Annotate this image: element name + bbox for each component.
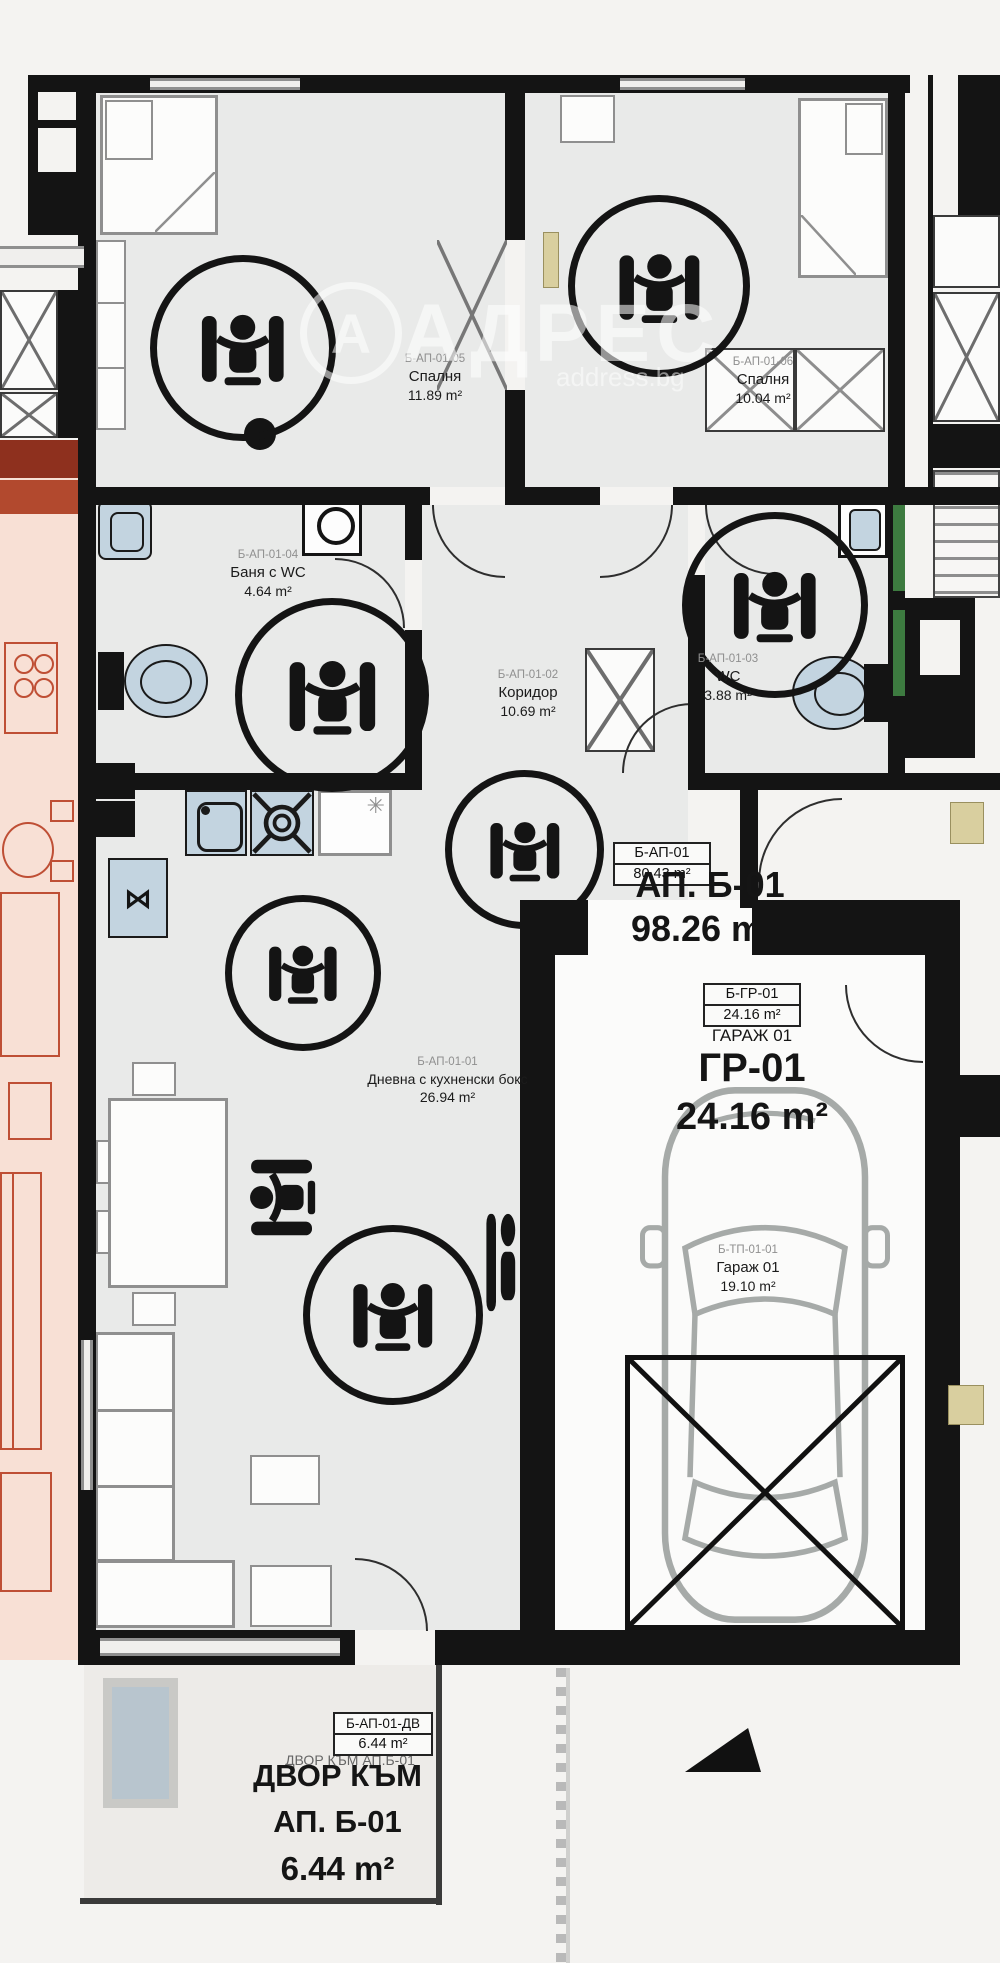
wheelchair-accessibility-icon bbox=[225, 895, 381, 1051]
room-code: Б-ТП-01-01 bbox=[668, 1243, 828, 1258]
wall-garage-right bbox=[925, 900, 960, 1665]
room-name: WC bbox=[648, 667, 808, 687]
toilet-bowl bbox=[140, 660, 192, 704]
room-area: 11.89 m² bbox=[355, 386, 515, 404]
sofa-chaise-icon bbox=[95, 1560, 235, 1628]
door-frame bbox=[948, 1385, 984, 1425]
wall-garage-left bbox=[520, 900, 555, 1665]
room-label-living: Б-АП-01-01 Дневна с кухненски бокс 26.94… bbox=[330, 1055, 565, 1106]
room-name: Гараж 01 bbox=[668, 1258, 828, 1278]
burner-icon bbox=[34, 678, 54, 698]
room-label-corridor: Б-АП-01-02 Коридор 10.69 m² bbox=[448, 668, 608, 721]
window-segment bbox=[0, 246, 84, 268]
cushion-line bbox=[98, 1409, 172, 1412]
wall-bathroom-right bbox=[405, 505, 422, 560]
fridge-icon: ✳ bbox=[318, 790, 392, 856]
room-name: Спалня bbox=[683, 370, 843, 390]
room-label-bedroom-2: Б-АП-01-06 Спалня 10.04 m² bbox=[683, 355, 843, 408]
shaft-opening bbox=[38, 92, 76, 120]
room-name: Коридор bbox=[448, 683, 608, 703]
shaft-crossed-box bbox=[933, 292, 1000, 422]
bed-icon bbox=[100, 95, 218, 235]
yard-code-box: Б-АП-01-ДВ 6.44 m² bbox=[333, 1712, 433, 1756]
window-segment bbox=[150, 78, 300, 90]
apartment-code: Б-АП-01 bbox=[615, 844, 709, 865]
room-label-wc: Б-АП-01-03 WC 3.88 m² bbox=[648, 652, 808, 705]
room-name: Баня с WC bbox=[188, 563, 348, 583]
neighbor-stove-icon bbox=[4, 642, 58, 734]
planter-icon bbox=[103, 1678, 178, 1808]
room-area: 26.94 m² bbox=[330, 1088, 565, 1106]
shaft-box bbox=[933, 215, 1000, 288]
neighbor-chair-icon bbox=[50, 800, 74, 822]
neighbor-round-table-icon bbox=[2, 822, 54, 878]
room-area: 10.69 m² bbox=[448, 702, 608, 720]
neighbor-counter-icon bbox=[0, 892, 60, 1057]
oven-tower-icon bbox=[95, 801, 135, 837]
dresser-icon bbox=[560, 95, 615, 143]
entrance-arrow-icon bbox=[685, 1728, 761, 1772]
shelf-line bbox=[98, 367, 124, 369]
burner-icon bbox=[14, 654, 34, 674]
property-dashed-line bbox=[556, 1668, 570, 1963]
wheelchair-accessibility-icon bbox=[303, 1225, 483, 1405]
yard-area-big: 6.44 m² bbox=[205, 1850, 470, 1888]
yard-code: Б-АП-01-ДВ bbox=[335, 1714, 431, 1735]
wall-segment bbox=[673, 487, 905, 505]
wall-segment bbox=[505, 487, 600, 505]
sofa-icon bbox=[95, 1332, 175, 1562]
wall-living-bottom bbox=[435, 1630, 523, 1665]
drum-icon bbox=[317, 507, 355, 545]
wheelchair-accessibility-icon bbox=[235, 598, 429, 792]
neighbor-kitchen-block bbox=[0, 440, 78, 478]
room-name: Дневна с кухненски бокс bbox=[330, 1070, 565, 1088]
pillow-icon bbox=[845, 103, 883, 155]
window-segment bbox=[100, 1638, 340, 1656]
garage-subtitle: ГАРАЖ 01 bbox=[672, 1026, 832, 1046]
window-segment bbox=[620, 78, 745, 90]
wall-wc-bottom bbox=[688, 773, 905, 790]
wheelchair-accessibility-icon bbox=[150, 255, 336, 441]
coffee-table-icon bbox=[250, 1455, 320, 1505]
shaft-opening bbox=[920, 620, 960, 675]
door-frame bbox=[950, 802, 984, 844]
door-frame bbox=[543, 232, 559, 288]
room-code: Б-АП-01-02 bbox=[448, 668, 608, 683]
yard-fence-bottom bbox=[80, 1898, 440, 1904]
sofa-line bbox=[12, 1174, 14, 1448]
green-accent-bar bbox=[893, 505, 905, 591]
stove-icon bbox=[250, 790, 314, 856]
sink-icon bbox=[98, 500, 152, 560]
chair-icon bbox=[96, 1140, 110, 1184]
dining-table-icon bbox=[108, 1098, 228, 1288]
toilet-tank bbox=[864, 664, 890, 722]
neighbor-cabinet-icon bbox=[8, 1082, 52, 1140]
neighbor-cabinet-icon bbox=[0, 1472, 52, 1592]
lift-platform-crossed-box bbox=[625, 1355, 905, 1630]
shaft-crossed-box bbox=[0, 392, 58, 438]
wheelchair-at-table-icon bbox=[223, 1145, 338, 1250]
yard-title-line1: ДВОР КЪМ bbox=[205, 1758, 470, 1794]
neighbor-kitchen-block bbox=[0, 480, 78, 514]
wall-segment bbox=[95, 487, 430, 505]
kitchen-sink-icon bbox=[185, 790, 247, 856]
bed-icon bbox=[798, 98, 888, 278]
sink-bowl bbox=[110, 512, 144, 552]
room-code: Б-АП-01-04 bbox=[188, 548, 348, 563]
room-area: 3.88 m² bbox=[648, 686, 808, 704]
toilet-tank bbox=[98, 652, 124, 710]
cushion-line bbox=[98, 1485, 172, 1488]
room-label-bathroom: Б-АП-01-04 Баня с WC 4.64 m² bbox=[188, 548, 348, 601]
room-code: Б-АП-01-01 bbox=[330, 1055, 565, 1070]
shaft-opening bbox=[38, 128, 76, 172]
shaft-crossed-box bbox=[0, 290, 58, 390]
shelf-line bbox=[98, 302, 124, 304]
garage-code: Б-ГР-01 bbox=[705, 985, 799, 1006]
garage-box-area: 24.16 m² bbox=[705, 1006, 799, 1025]
wall-right-top bbox=[888, 75, 905, 505]
pillow-icon bbox=[105, 100, 153, 160]
room-code: Б-АП-01-06 bbox=[683, 355, 843, 370]
room-label-bedroom-1: Б-АП-01-05 Спалня 11.89 m² bbox=[355, 352, 515, 405]
sink-bowl bbox=[849, 509, 881, 551]
garage-area-big: 24.16 m² bbox=[652, 1096, 852, 1139]
wall-garage-bottom bbox=[520, 1630, 960, 1665]
wheelchair-accessibility-icon bbox=[568, 195, 750, 377]
yard-title-line2: АП. Б-01 bbox=[205, 1804, 470, 1840]
neighbor-sofa-icon bbox=[0, 1172, 42, 1450]
chair-icon bbox=[96, 1210, 110, 1254]
freezer-snowflake-icon: ✳ bbox=[367, 793, 385, 819]
apartment-title: АП. Б-01 bbox=[600, 864, 820, 906]
chair-icon bbox=[132, 1292, 176, 1326]
wall-bathroom-bottom bbox=[95, 773, 422, 790]
burner-icon bbox=[14, 678, 34, 698]
wall-segment bbox=[905, 773, 1000, 790]
wall-bathroom-right bbox=[405, 630, 422, 790]
garage-code-box: Б-ГР-01 24.16 m² bbox=[703, 983, 801, 1027]
room-area: 10.04 m² bbox=[683, 389, 843, 407]
yard-box-area: 6.44 m² bbox=[335, 1735, 431, 1754]
floor-plan: ✳ ⋈ bbox=[0, 0, 1000, 1963]
armchair-icon bbox=[250, 1565, 332, 1627]
room-name: Спалня bbox=[355, 367, 515, 387]
wall-segment bbox=[958, 75, 1000, 215]
window-segment bbox=[81, 1340, 93, 1490]
dishwasher-icon: ⋈ bbox=[108, 858, 168, 938]
wall-segment bbox=[933, 424, 1000, 468]
dishwasher-glyph: ⋈ bbox=[110, 882, 166, 915]
room-code: Б-АП-01-03 bbox=[648, 652, 808, 667]
wall-segment bbox=[905, 487, 1000, 505]
wall-bedroom-divider bbox=[505, 75, 525, 240]
room-area: 19.10 m² bbox=[668, 1277, 828, 1295]
toilet-icon bbox=[124, 644, 208, 718]
neighbor-chair-icon bbox=[50, 860, 74, 882]
chair-icon bbox=[132, 1062, 176, 1096]
room-label-garage-unit: Б-ТП-01-01 Гараж 01 19.10 m² bbox=[668, 1243, 828, 1296]
green-accent-bar bbox=[893, 610, 905, 696]
burner-icon bbox=[34, 654, 54, 674]
room-area: 4.64 m² bbox=[188, 582, 348, 600]
wardrobe-icon bbox=[96, 240, 126, 430]
room-code: Б-АП-01-05 bbox=[355, 352, 515, 367]
garage-title: ГР-01 bbox=[662, 1046, 842, 1091]
drain-dot bbox=[201, 806, 210, 815]
